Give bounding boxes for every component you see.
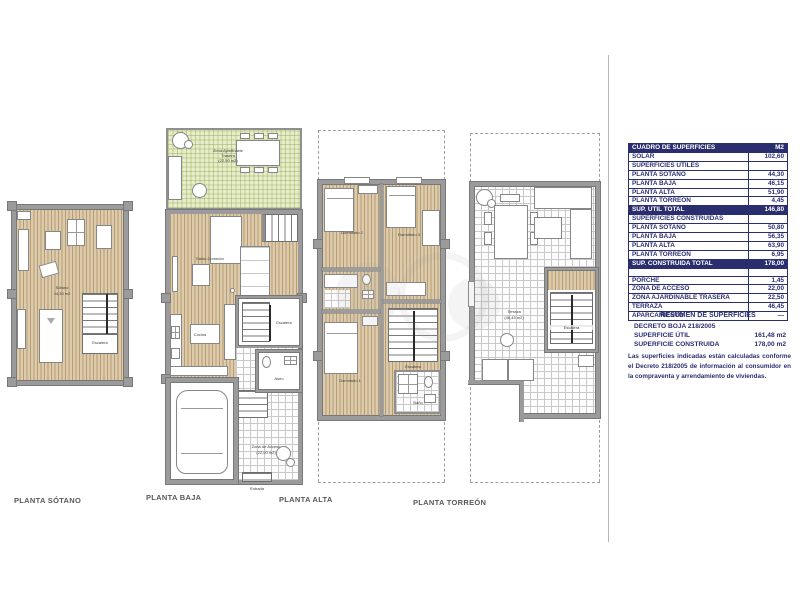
chair: [254, 133, 264, 139]
stairs-label: Escalera: [390, 364, 436, 369]
living-label: Salón-Comedor: [184, 256, 236, 261]
outdoor-sofa: [534, 187, 592, 209]
summary-value: 161,48 m2: [754, 332, 786, 339]
summary-line: SUPERFICIE CONSTRUIDA 178,00 m2: [634, 341, 786, 348]
bed-pillow-line: [327, 333, 357, 334]
wall-pillar: [124, 290, 132, 298]
shelf: [17, 309, 26, 349]
kitchen-label: Cocina: [180, 332, 220, 337]
bed: [386, 186, 416, 228]
summary-line: SUPERFICIE ÚTIL 161,48 m2: [634, 332, 786, 339]
table-row: PLANTA ALTA51,90: [629, 188, 788, 197]
entry-label: Entrada: [236, 486, 278, 491]
sink: [171, 326, 180, 339]
window: [396, 177, 422, 184]
table-cell-label: SUPERFICIES ÚTILES: [629, 161, 749, 170]
summary-title: RESUMEN DE SUPERFICIES: [628, 312, 788, 319]
table-cell-value: 50,80: [749, 224, 788, 233]
table-cell-value: 56,35: [749, 233, 788, 242]
table-cell-label: SOLAR: [629, 152, 749, 161]
car-rear-window: [181, 453, 223, 454]
table-cell-label: PLANTA ALTA: [629, 188, 749, 197]
table-cell-label: PLANTA SÓTANO: [629, 170, 749, 179]
stairs: [550, 292, 593, 344]
table-cell-label: TERRAZA: [629, 303, 749, 312]
chair: [254, 167, 264, 173]
plan-title-torreon: PLANTA TORREÓN: [413, 498, 486, 507]
stairs-label: Escalera: [82, 340, 118, 345]
stairs-label: Escalera: [270, 320, 298, 325]
table-cell-value: [749, 215, 788, 224]
bath-label: Baño: [396, 400, 440, 405]
utility-box: [578, 355, 594, 367]
room-label: Sótano: [40, 285, 84, 290]
table-cell-label: CUADRO DE SUPERFICIES: [629, 144, 749, 153]
plan-baja: Zona Ajardinable Trasera (22,50 m2) Saló…: [166, 128, 302, 496]
table-cell-label: ZONA DE ACCESO: [629, 285, 749, 294]
summary-label: SUPERFICIE CONSTRUIDA: [634, 341, 719, 348]
shower: [398, 374, 418, 394]
chair: [240, 133, 250, 139]
utility-unit: [39, 309, 63, 363]
dashed-outline: [444, 130, 445, 180]
surfaces-table: CUADRO DE SUPERFICIESM2SOLAR102,60SUPERF…: [628, 143, 788, 321]
stair-rail: [106, 294, 108, 335]
bedroom1-label: Dormitorio 1: [326, 378, 374, 383]
table-row: PLANTA TORREÓN6,95: [629, 250, 788, 259]
plan-title-baja: PLANTA BAJA: [146, 493, 201, 502]
table-row: PLANTA SÓTANO50,80: [629, 224, 788, 233]
triangle-mark: [47, 318, 55, 324]
table-row: ZONA AJARDINABLE TRASERA22,50: [629, 294, 788, 303]
wall-pillar: [314, 240, 322, 248]
cabinet: [96, 225, 112, 249]
table-cell-label: SUP. ÚTIL TOTAL: [629, 206, 749, 215]
table-cell-label: PLANTA TORREÓN: [629, 197, 749, 206]
table-cell-value: [749, 268, 788, 276]
bedroom3-label: Dormitorio 3: [384, 232, 434, 237]
garden-area-label: (22,50 m2): [200, 158, 256, 163]
table-cell-value: 22,00: [749, 285, 788, 294]
dashed-outline: [470, 387, 471, 482]
table-cell-value: 1,45: [749, 276, 788, 285]
outdoor-sofa: [570, 209, 592, 259]
dashed-outline: [444, 422, 445, 482]
watermark: [448, 278, 500, 330]
dashed-outline: [470, 133, 600, 134]
bench: [508, 359, 534, 381]
table-row: ZONA DE ACCESO22,00: [629, 285, 788, 294]
table-row: SUPERFICIES CONSTRUIDAS: [629, 215, 788, 224]
kitchen-peninsula: [224, 304, 236, 360]
terrace-table: [494, 205, 528, 259]
table-cell-label: ZONA AJARDINABLE TRASERA: [629, 294, 749, 303]
chair: [500, 194, 520, 202]
table-cell-label: SUPERFICIES CONSTRUIDAS: [629, 215, 749, 224]
lamp: [230, 288, 235, 293]
table-cell-value: 51,90: [749, 188, 788, 197]
table-cell-value: 46,15: [749, 179, 788, 188]
table-row: PLANTA TORREÓN4,45: [629, 197, 788, 206]
dashed-outline: [318, 482, 445, 483]
table-cell-value: 102,60: [749, 152, 788, 161]
table-row: TERRAZA46,45: [629, 303, 788, 312]
table-row: SUP. ÚTIL TOTAL146,80: [629, 206, 788, 215]
watermark: [336, 262, 400, 326]
table-cell-value: 46,45: [749, 303, 788, 312]
table-cell-label: PORCHE: [629, 276, 749, 285]
dashed-outline: [318, 130, 319, 180]
bed: [324, 188, 354, 232]
round-table: [192, 183, 207, 198]
aseo-label: Aseo: [258, 376, 300, 381]
table-row: PORCHE1,45: [629, 276, 788, 285]
bedroom2-label: Dormitorio 2: [328, 230, 376, 235]
table-cell-label: PLANTA SÓTANO: [629, 224, 749, 233]
coffee-table: [534, 217, 562, 239]
table-row: PLANTA BAJA56,35: [629, 233, 788, 242]
chair: [240, 167, 250, 173]
table-cell-value: 44,30: [749, 170, 788, 179]
vertical-divider: [608, 55, 609, 542]
toilet: [262, 356, 271, 368]
wall-pillar: [8, 290, 16, 298]
dashed-outline: [470, 482, 600, 483]
bed: [324, 322, 358, 374]
torreon-floor: [548, 271, 595, 290]
wall-pillar: [8, 378, 16, 386]
kitchen-counter: [170, 366, 228, 376]
bed-pillow-line: [327, 198, 353, 199]
table-cell-value: 178,00: [749, 259, 788, 268]
summary-value: 178,00 m2: [754, 341, 786, 348]
table-row: CUADRO DE SUPERFICIESM2: [629, 144, 788, 153]
table-cell-value: 4,45: [749, 197, 788, 206]
stair-rail: [571, 295, 573, 343]
toilet: [424, 376, 433, 388]
table-row: PLANTA BAJA46,15: [629, 179, 788, 188]
dashed-outline: [318, 130, 445, 131]
table-cell-label: PLANTA ALTA: [629, 241, 749, 250]
wall-pillar: [8, 202, 16, 210]
closet: [18, 229, 29, 271]
table-cell-label: PLANTA BAJA: [629, 179, 749, 188]
table-row: SOLAR102,60: [629, 152, 788, 161]
dashed-outline: [318, 422, 319, 482]
table-cell-label: SUP. CONSTRUIDA TOTAL: [629, 259, 749, 268]
table-cell-label: PLANTA BAJA: [629, 233, 749, 242]
stairs: [82, 293, 118, 335]
bench: [482, 359, 508, 381]
entry-threshold: [242, 472, 272, 482]
sectional-sofa: [240, 246, 270, 300]
chair: [484, 212, 492, 225]
surfaces-table-body: CUADRO DE SUPERFICIESM2SOLAR102,60SUPERF…: [629, 144, 788, 321]
plan-title-sotano: PLANTA SÓTANO: [14, 496, 81, 505]
wall-pillar: [441, 352, 449, 360]
floorplan-sheet: Sótano 44,30 m2 Escalera PLANTA SÓTANO Z…: [0, 0, 800, 600]
stairs-label: Escalera: [550, 325, 593, 330]
legal-note: Las superficies indicadas están calculad…: [628, 352, 791, 381]
wardrobe: [422, 210, 440, 246]
plant: [500, 333, 514, 347]
table-cell-value: 6,95: [749, 250, 788, 259]
plant: [286, 458, 295, 467]
wardrobe: [358, 185, 378, 194]
table-row: PLANTA SÓTANO44,30: [629, 170, 788, 179]
plan-sotano: Sótano 44,30 m2 Escalera: [12, 205, 128, 385]
table-cell-value: 63,90: [749, 241, 788, 250]
table-row: SUP. CONSTRUIDA TOTAL178,00: [629, 259, 788, 268]
dashed-outline: [599, 133, 600, 182]
plant: [184, 140, 193, 149]
table-cell-label: [629, 268, 749, 276]
summary-decree: DECRETO BOJA 218/2005: [634, 323, 715, 330]
car-windshield: [181, 408, 223, 409]
entry-steps: [236, 390, 268, 418]
summary-label: SUPERFICIE ÚTIL: [634, 332, 690, 339]
table-row: SUPERFICIES ÚTILES: [629, 161, 788, 170]
wall-pillar: [124, 202, 132, 210]
car: [176, 390, 228, 474]
stairs: [262, 214, 298, 242]
table-cell-value: M2: [749, 144, 788, 153]
dashed-outline: [599, 420, 600, 482]
window-table: [67, 219, 85, 246]
wall-pillar: [124, 378, 132, 386]
stairs: [242, 302, 270, 342]
hob: [171, 348, 180, 359]
terrace-notch: [468, 380, 524, 422]
bed-pillow-line: [389, 195, 415, 196]
table-row: PLANTA ALTA63,90: [629, 241, 788, 250]
wall-pillar: [162, 294, 170, 302]
sink: [284, 356, 297, 365]
plan-title-alta: PLANTA ALTA: [279, 495, 333, 504]
tv-unit: [172, 256, 178, 292]
table-cell-value: [749, 161, 788, 170]
chair: [268, 167, 278, 173]
side-table: [192, 264, 210, 286]
window: [344, 177, 370, 184]
table-cell-value: 22,50: [749, 294, 788, 303]
cabinet: [45, 231, 61, 250]
wall-pillar: [314, 352, 322, 360]
chair: [268, 133, 278, 139]
table-cell-label: PLANTA TORREÓN: [629, 250, 749, 259]
garden-sofa: [168, 156, 182, 200]
wall-pillar: [441, 240, 449, 248]
chair: [484, 232, 492, 245]
dashed-outline: [470, 133, 471, 182]
table-row: [629, 268, 788, 276]
table-cell-value: 146,80: [749, 206, 788, 215]
room-area-label: 44,30 m2: [40, 291, 84, 296]
door-swing: [17, 211, 31, 220]
